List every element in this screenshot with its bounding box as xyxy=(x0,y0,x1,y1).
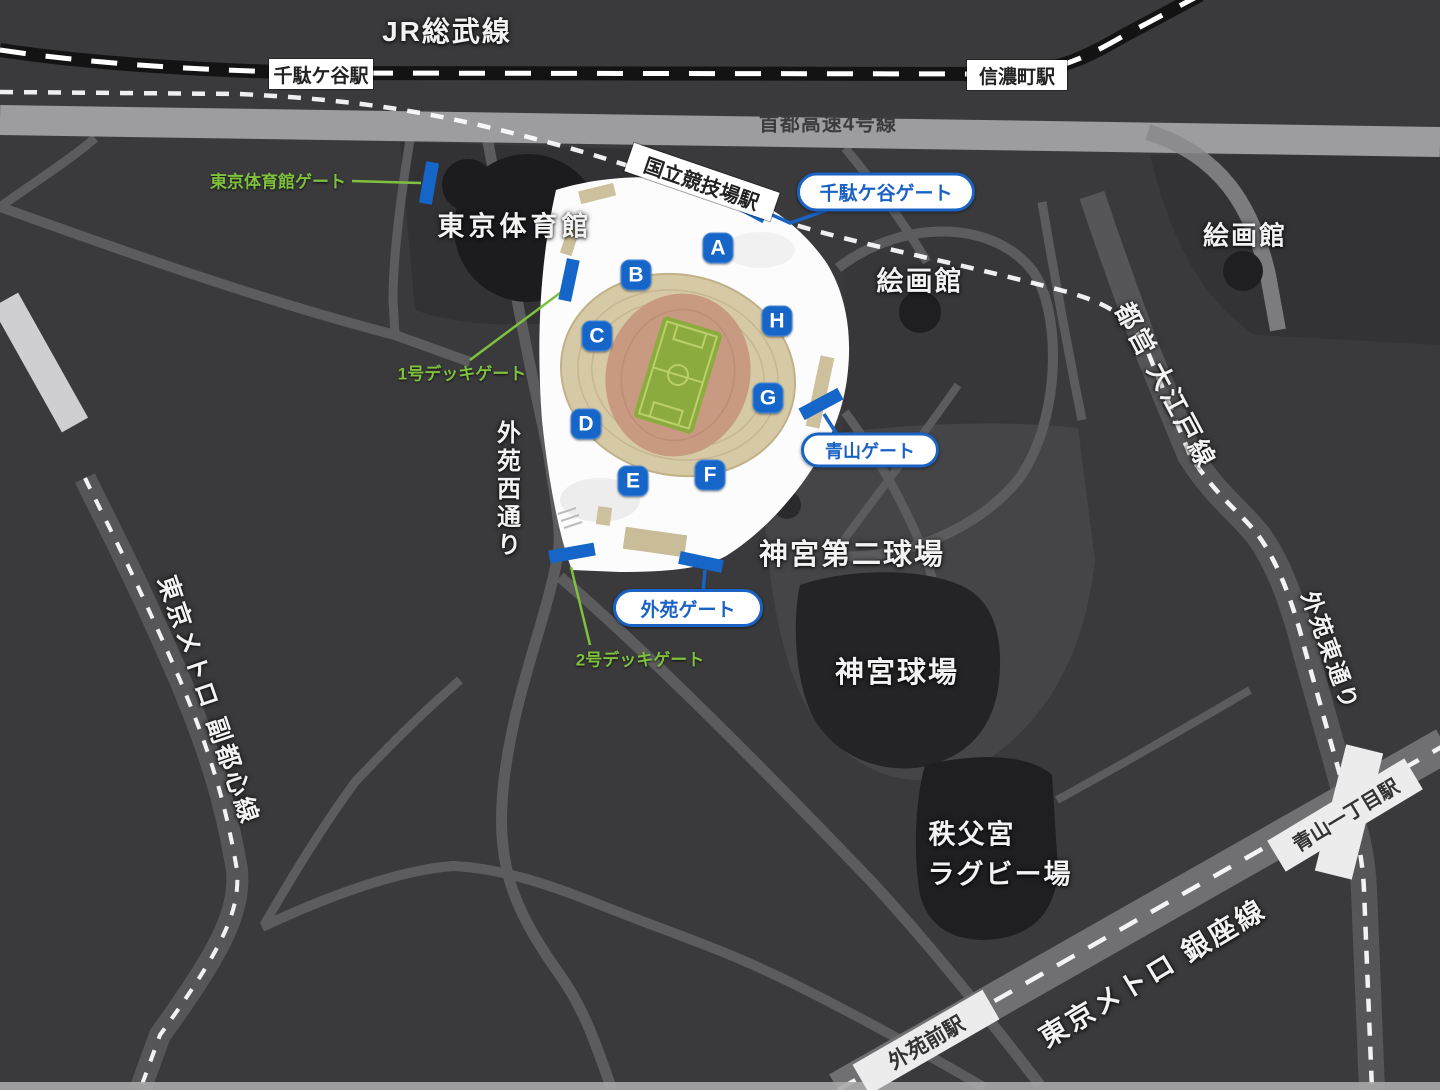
plaza-shade xyxy=(725,232,795,268)
gaien-gate-label: 外苑ゲート xyxy=(613,589,763,627)
gallery-west-label: 絵画館 xyxy=(877,260,964,299)
tokyo-gym-label: 東京体育館 xyxy=(438,205,593,244)
gate-badge-D: D xyxy=(571,409,602,440)
rugby-label-line2: ラグビー場 xyxy=(928,853,1073,892)
gate-badge-C: C xyxy=(582,321,613,352)
bottom-edge-band xyxy=(0,1082,1440,1090)
tokyo-gym-annex xyxy=(442,159,494,211)
stadium-area-map: JR総武線 千駄ケ谷駅 信濃町駅 首都高速4号線 国立競技場駅 千駄ケ谷ゲート … xyxy=(0,0,1440,1090)
gallery-east-dot xyxy=(1223,251,1263,291)
tokyo-gym-gate-label: 東京体育館ゲート xyxy=(210,168,346,193)
jingu-second-label: 神宮第二球場 xyxy=(759,531,945,573)
gate-badge-H: H xyxy=(762,306,793,337)
gate-badge-G: G xyxy=(753,383,784,414)
station-shinanomachi: 信濃町駅 xyxy=(967,60,1067,90)
deck1-gate-label: 1号デッキゲート xyxy=(398,360,526,385)
station-sendagaya: 千駄ケ谷駅 xyxy=(269,59,373,89)
jingu-stadium-label: 神宮球場 xyxy=(835,649,959,691)
gate-badge-B: B xyxy=(621,260,652,291)
gate-badge-F: F xyxy=(695,460,726,491)
gaien-west-street-label: 外苑西通り xyxy=(489,420,524,560)
shuto-expressway-label: 首都高速4号線 xyxy=(759,108,897,137)
aoyama-gate-label: 青山ゲート xyxy=(801,433,939,468)
sendagaya-gate-label: 千駄ケ谷ゲート xyxy=(797,173,975,212)
deck2-gate-label: 2号デッキゲート xyxy=(576,646,704,671)
gate-badge-E: E xyxy=(618,466,649,497)
rugby-label-line1: 秩父宮 xyxy=(929,813,1016,852)
gate-badge-A: A xyxy=(703,233,734,264)
gallery-east-label: 絵画館 xyxy=(1203,216,1287,253)
jr-sobu-line-label: JR総武線 xyxy=(382,10,512,50)
